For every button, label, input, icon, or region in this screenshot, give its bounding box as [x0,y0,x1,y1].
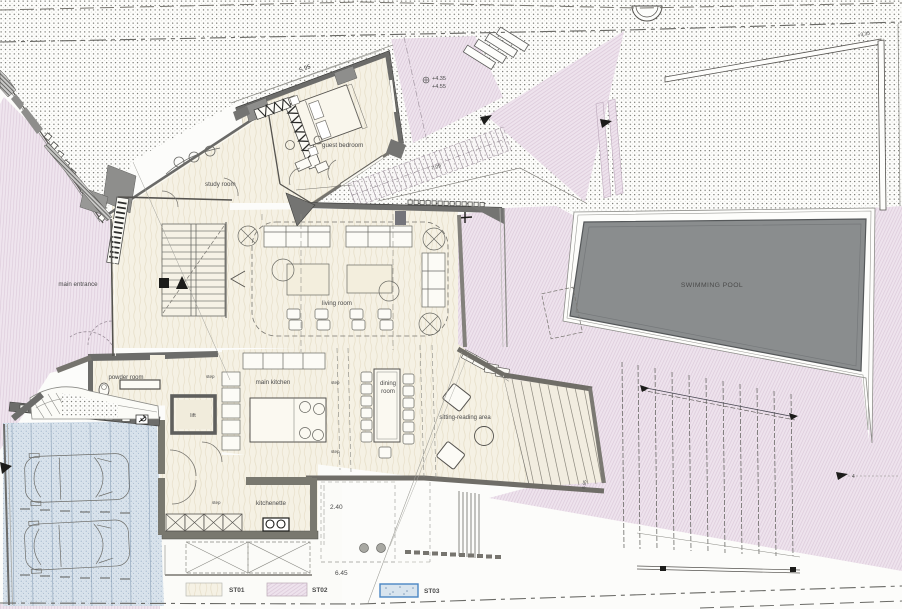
svg-text:lift: lift [190,413,196,419]
svg-text:step: step [212,500,221,505]
svg-text:powder room: powder room [108,375,143,381]
svg-text:kitchenette: kitchenette [256,500,286,507]
svg-text:2.40: 2.40 [330,504,343,511]
svg-text:main kitchen: main kitchen [256,379,291,386]
svg-text:step: step [206,374,215,379]
svg-text:step: step [331,380,340,385]
svg-text:ST01: ST01 [229,587,245,594]
svg-text:ST02: ST02 [312,587,328,594]
svg-text:ST03: ST03 [424,588,440,595]
svg-text:+4.35: +4.35 [432,76,446,82]
svg-text:+4.55: +4.55 [432,84,446,90]
svg-text:main entrance: main entrance [58,281,98,288]
svg-text:study room: study room [205,181,236,188]
svg-text:SWIMMING POOL: SWIMMING POOL [681,282,743,289]
svg-text:dining: dining [380,381,396,387]
svg-text:4: 4 [852,474,855,480]
svg-text:guest bedroom: guest bedroom [322,142,363,149]
svg-text:sitting-reading area: sitting-reading area [439,415,491,421]
svg-text:6.45: 6.45 [335,570,348,577]
svg-text:room: room [381,389,395,395]
svg-text:living room: living room [322,300,352,307]
svg-text:step: step [331,449,340,454]
